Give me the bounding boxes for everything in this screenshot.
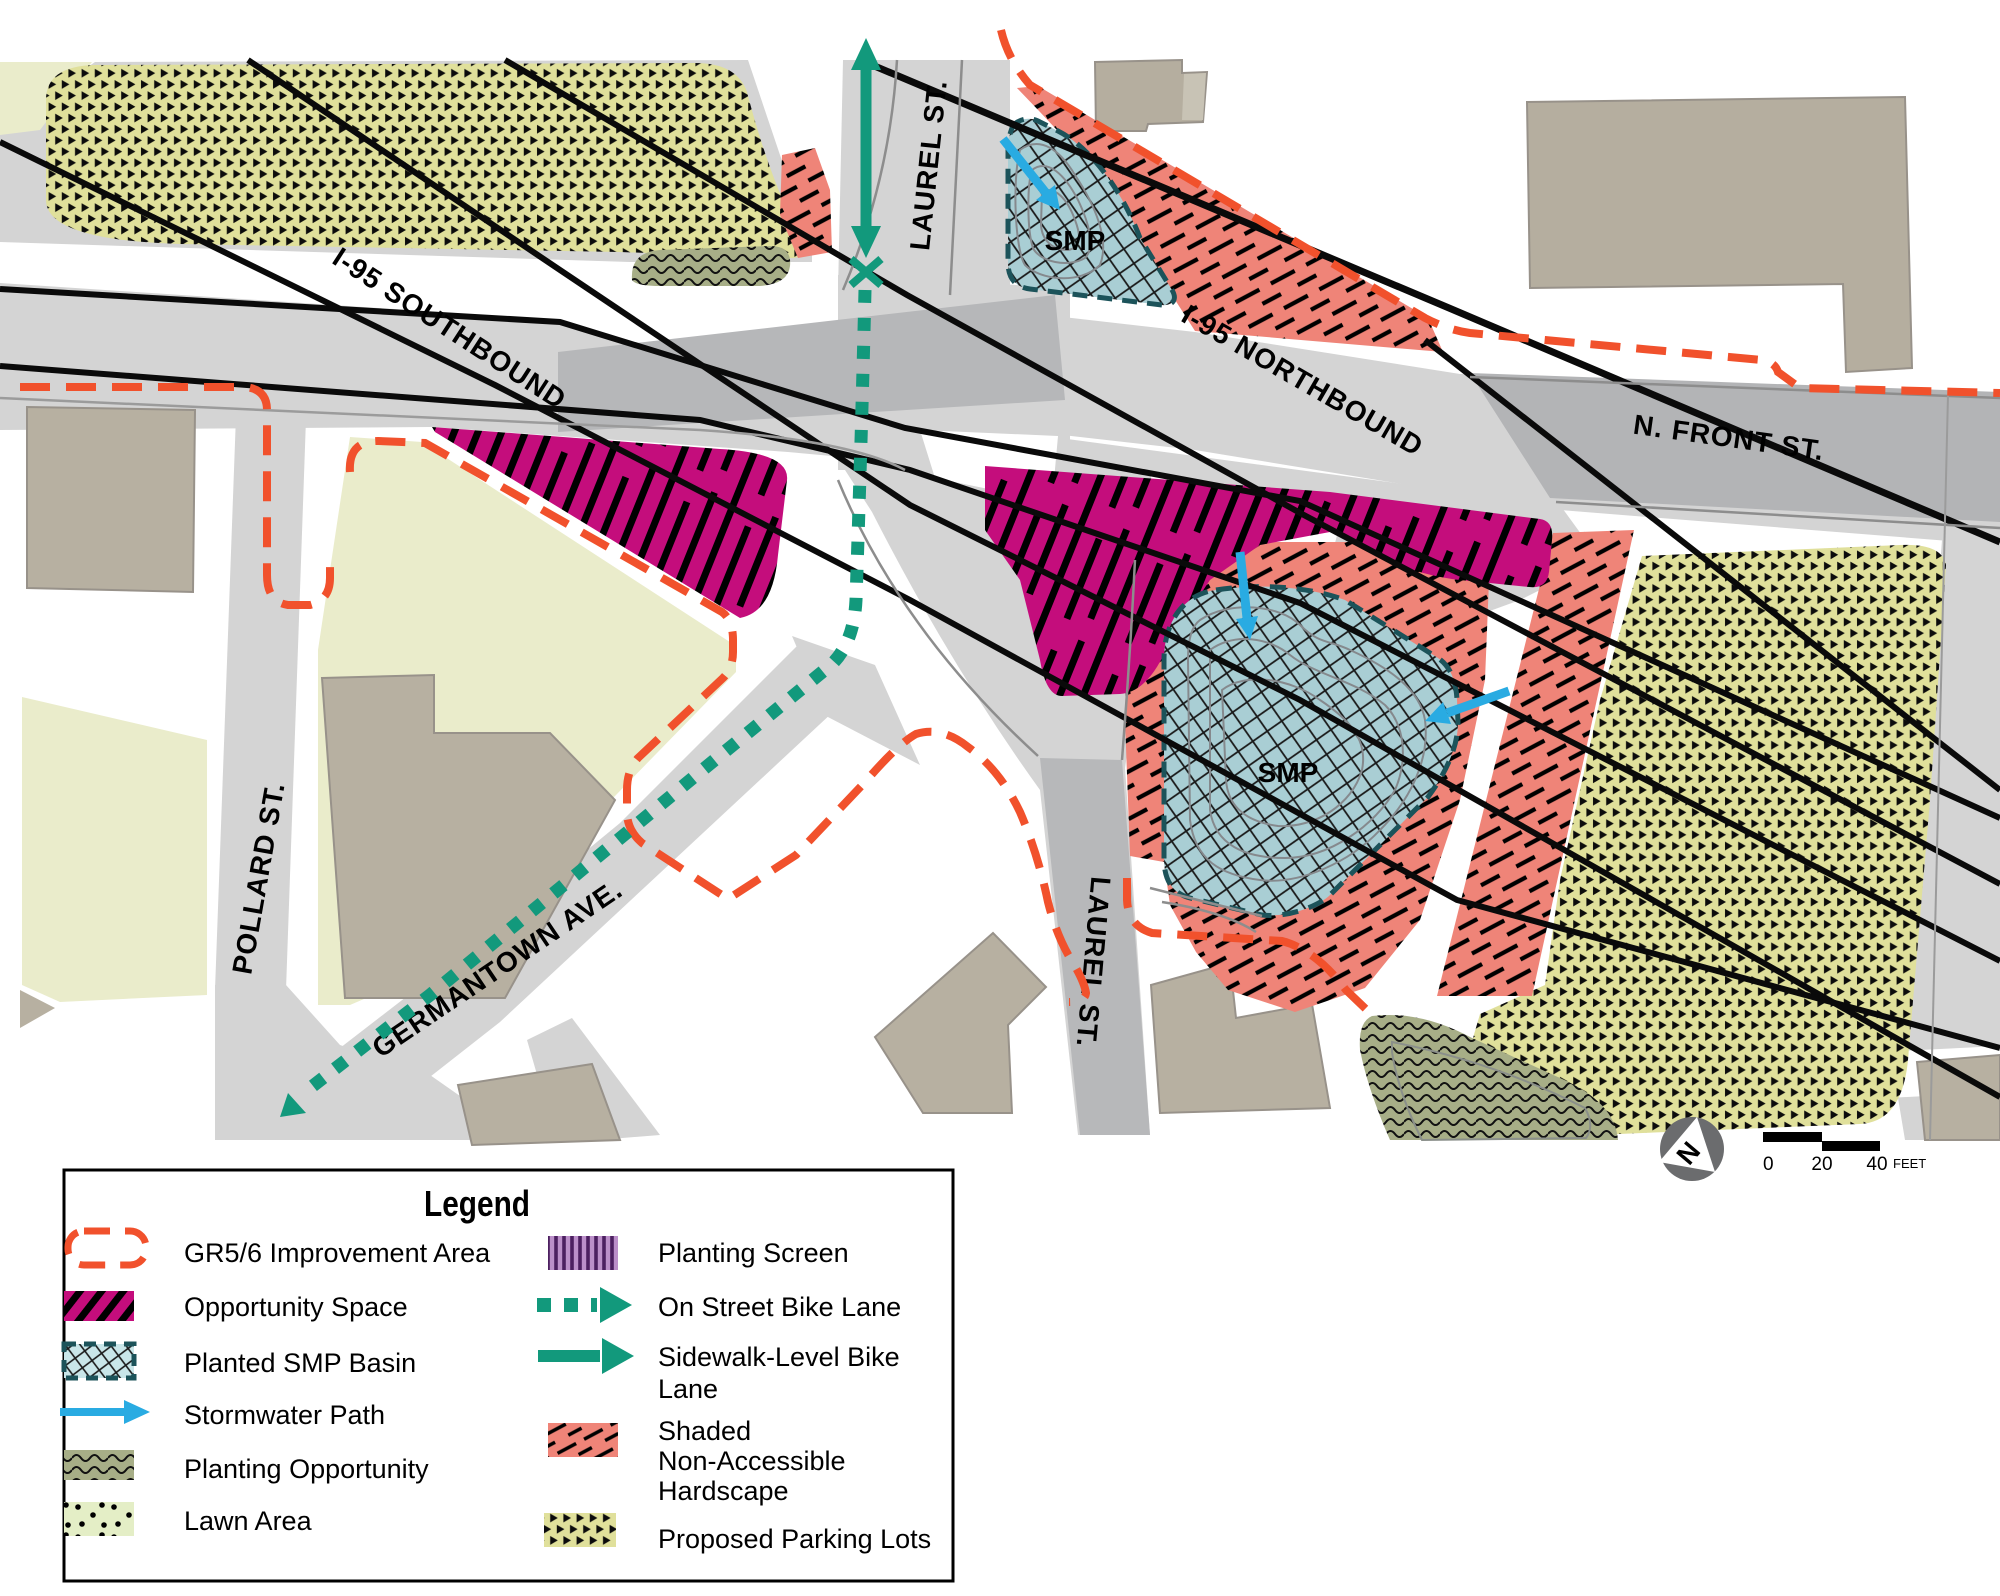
svg-text:Planted SMP Basin: Planted SMP Basin: [184, 1348, 416, 1378]
svg-text:Non-Accessible: Non-Accessible: [658, 1446, 846, 1476]
svg-text:Lawn Area: Lawn Area: [184, 1506, 313, 1536]
svg-text:Legend: Legend: [424, 1183, 530, 1224]
svg-text:Stormwater Path: Stormwater Path: [184, 1400, 385, 1430]
svg-text:Planting Screen: Planting Screen: [658, 1238, 849, 1268]
svg-text:20: 20: [1811, 1154, 1832, 1175]
svg-text:Shaded: Shaded: [658, 1416, 751, 1446]
svg-text:40: 40: [1866, 1154, 1887, 1175]
svg-text:0: 0: [1763, 1154, 1774, 1175]
svg-text:GR5/6 Improvement Area: GR5/6 Improvement Area: [184, 1238, 491, 1268]
svg-text:On Street Bike Lane: On Street Bike Lane: [658, 1292, 901, 1322]
svg-text:Hardscape: Hardscape: [658, 1476, 789, 1506]
svg-text:Sidewalk-Level Bike: Sidewalk-Level Bike: [658, 1342, 900, 1372]
svg-text:Planting Opportunity: Planting Opportunity: [184, 1454, 429, 1484]
svg-text:Opportunity Space: Opportunity Space: [184, 1292, 408, 1322]
svg-text:SMP: SMP: [1258, 757, 1319, 788]
svg-text:Proposed Parking Lots: Proposed Parking Lots: [658, 1524, 931, 1554]
svg-text:SMP: SMP: [1045, 225, 1106, 256]
svg-text:Lane: Lane: [658, 1374, 718, 1404]
svg-text:FEET: FEET: [1893, 1156, 1926, 1171]
